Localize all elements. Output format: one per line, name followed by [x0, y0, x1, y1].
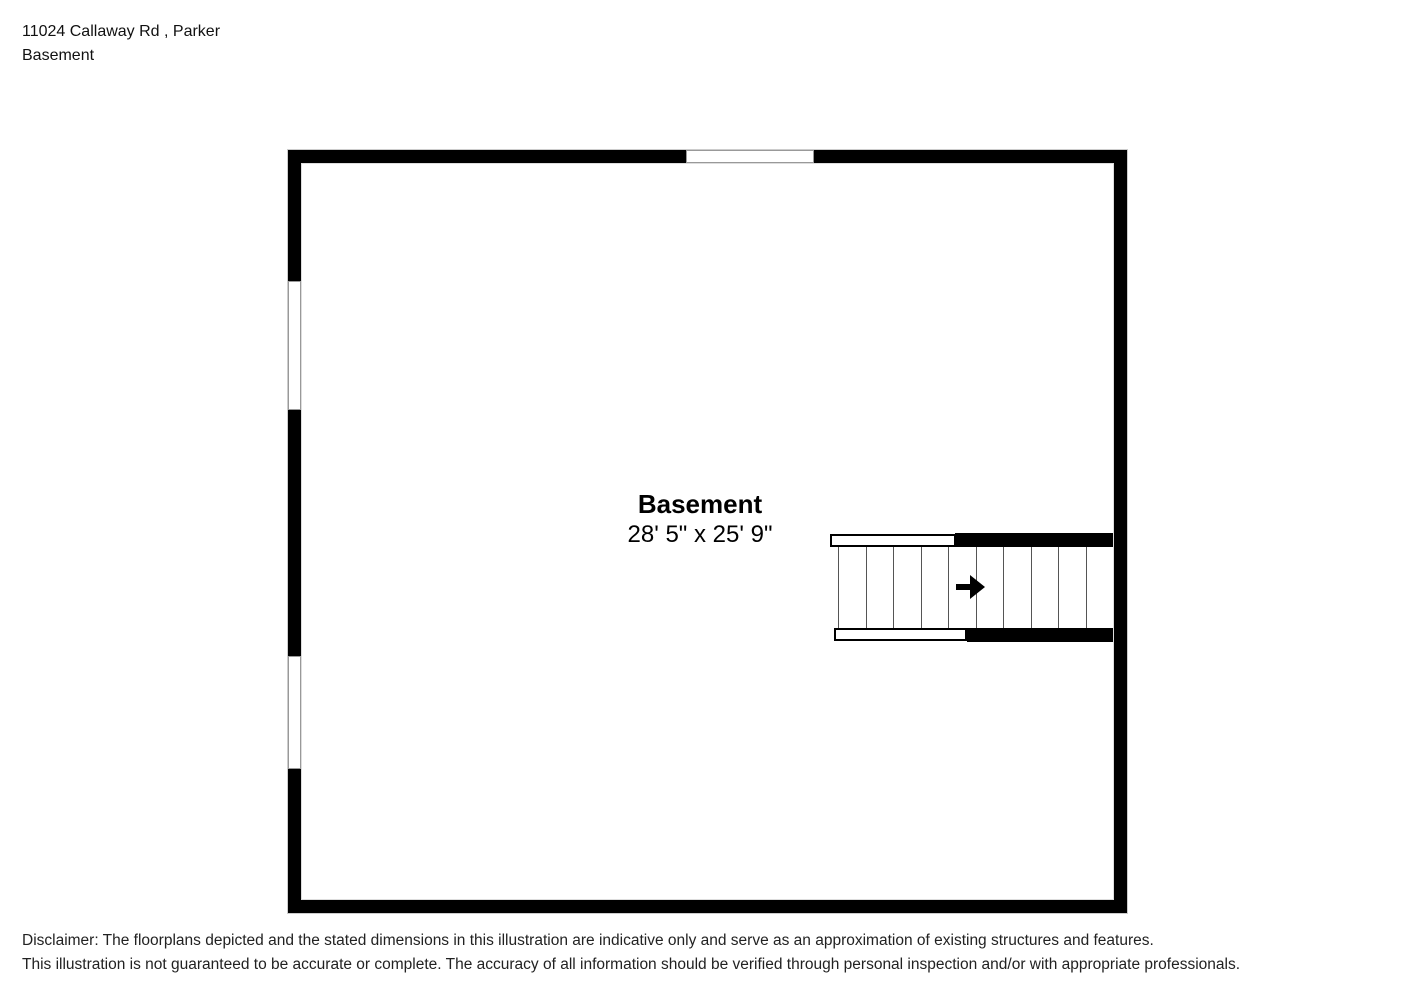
- stair-step: [1059, 547, 1087, 628]
- stair-step: [1004, 547, 1032, 628]
- stair-direction-arrow-icon: [956, 575, 985, 599]
- address-title: 11024 Callaway Rd , Parker: [22, 20, 220, 44]
- window-top-center: [686, 150, 814, 163]
- stair-wall-bottom: [967, 628, 1113, 642]
- stair-step: [839, 547, 867, 628]
- window-left-lower: [288, 656, 301, 769]
- floorplan-outline: [288, 150, 1127, 913]
- stair-step: [1032, 547, 1060, 628]
- stair-step: [894, 547, 922, 628]
- stair-step: [922, 547, 950, 628]
- stair-rail-bottom: [834, 628, 967, 641]
- stair-rail-top: [830, 534, 956, 547]
- plan-header: 11024 Callaway Rd , Parker Basement: [22, 20, 220, 68]
- stair-step: [1087, 547, 1114, 628]
- window-left-upper: [288, 281, 301, 410]
- disclaimer-line-2: This illustration is not guaranteed to b…: [22, 953, 1402, 977]
- floor-subtitle: Basement: [22, 44, 220, 68]
- stair-wall-top: [955, 533, 1113, 547]
- disclaimer-line-1: Disclaimer: The floorplans depicted and …: [22, 929, 1402, 953]
- disclaimer: Disclaimer: The floorplans depicted and …: [22, 929, 1402, 977]
- arrow-head: [970, 575, 985, 599]
- stair-step: [867, 547, 895, 628]
